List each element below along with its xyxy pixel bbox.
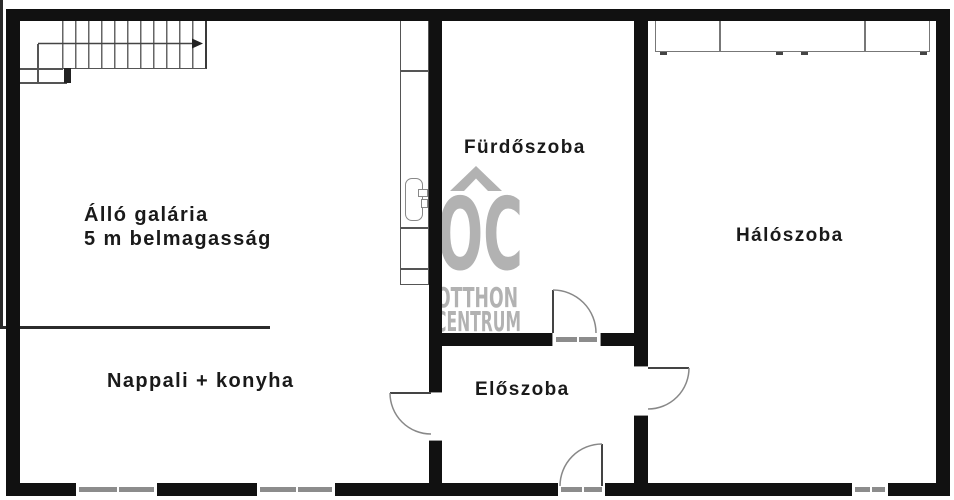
house-roof-icon [450, 166, 502, 191]
door-opening-living [429, 392, 442, 441]
wardrobe-foot [776, 52, 783, 55]
door-swing-bathroom [553, 290, 596, 333]
washbasin-tap [421, 199, 428, 208]
window [852, 483, 888, 496]
room-label-bedroom: Hálószoba [736, 225, 844, 247]
wall-bathroom-hallway [442, 333, 634, 346]
door-opening-bathroom [552, 333, 601, 346]
staircase-treads [62, 21, 207, 69]
wardrobe-foot [801, 52, 808, 55]
floor-plan: OC OTTHON CENTRUM [0, 0, 954, 500]
window [76, 483, 157, 496]
gallery-partition-wall [0, 0, 3, 326]
wardrobe-foot [660, 52, 667, 55]
window [257, 483, 335, 496]
room-label-bathroom: Fürdőszoba [464, 137, 586, 159]
counter-divider [400, 227, 429, 229]
wall-top [6, 9, 950, 21]
kitchen-counter-strip [400, 21, 429, 285]
wardrobe-foot [920, 52, 927, 55]
watermark-word-1: OTTHON [436, 281, 518, 314]
gallery-label-line1: Álló galária [84, 203, 272, 227]
watermark-monogram: OC [437, 176, 523, 293]
staircase-newel-post [64, 68, 71, 83]
door-swing-living [390, 393, 431, 434]
wall-right [936, 9, 950, 496]
room-label-living-kitchen: Nappali + konyha [107, 370, 294, 393]
door-swing-entrance [560, 444, 602, 486]
gallery-partition-wall [0, 326, 270, 329]
entrance-threshold [558, 483, 605, 496]
wardrobe-divider [864, 21, 866, 52]
washbasin-tap [418, 189, 428, 197]
door-swing-bedroom [648, 368, 689, 409]
wardrobe-symbol [655, 21, 930, 52]
counter-divider [400, 268, 429, 270]
door-opening-bedroom [634, 366, 648, 416]
gallery-label-line2: 5 m belmagasság [84, 227, 272, 251]
wall-left [6, 9, 20, 496]
room-label-hallway: Előszoba [475, 379, 570, 401]
room-label-gallery: Álló galária 5 m belmagasság [84, 203, 272, 251]
wardrobe-divider [719, 21, 721, 52]
staircase-landing-line [37, 44, 39, 83]
counter-divider [400, 70, 429, 72]
